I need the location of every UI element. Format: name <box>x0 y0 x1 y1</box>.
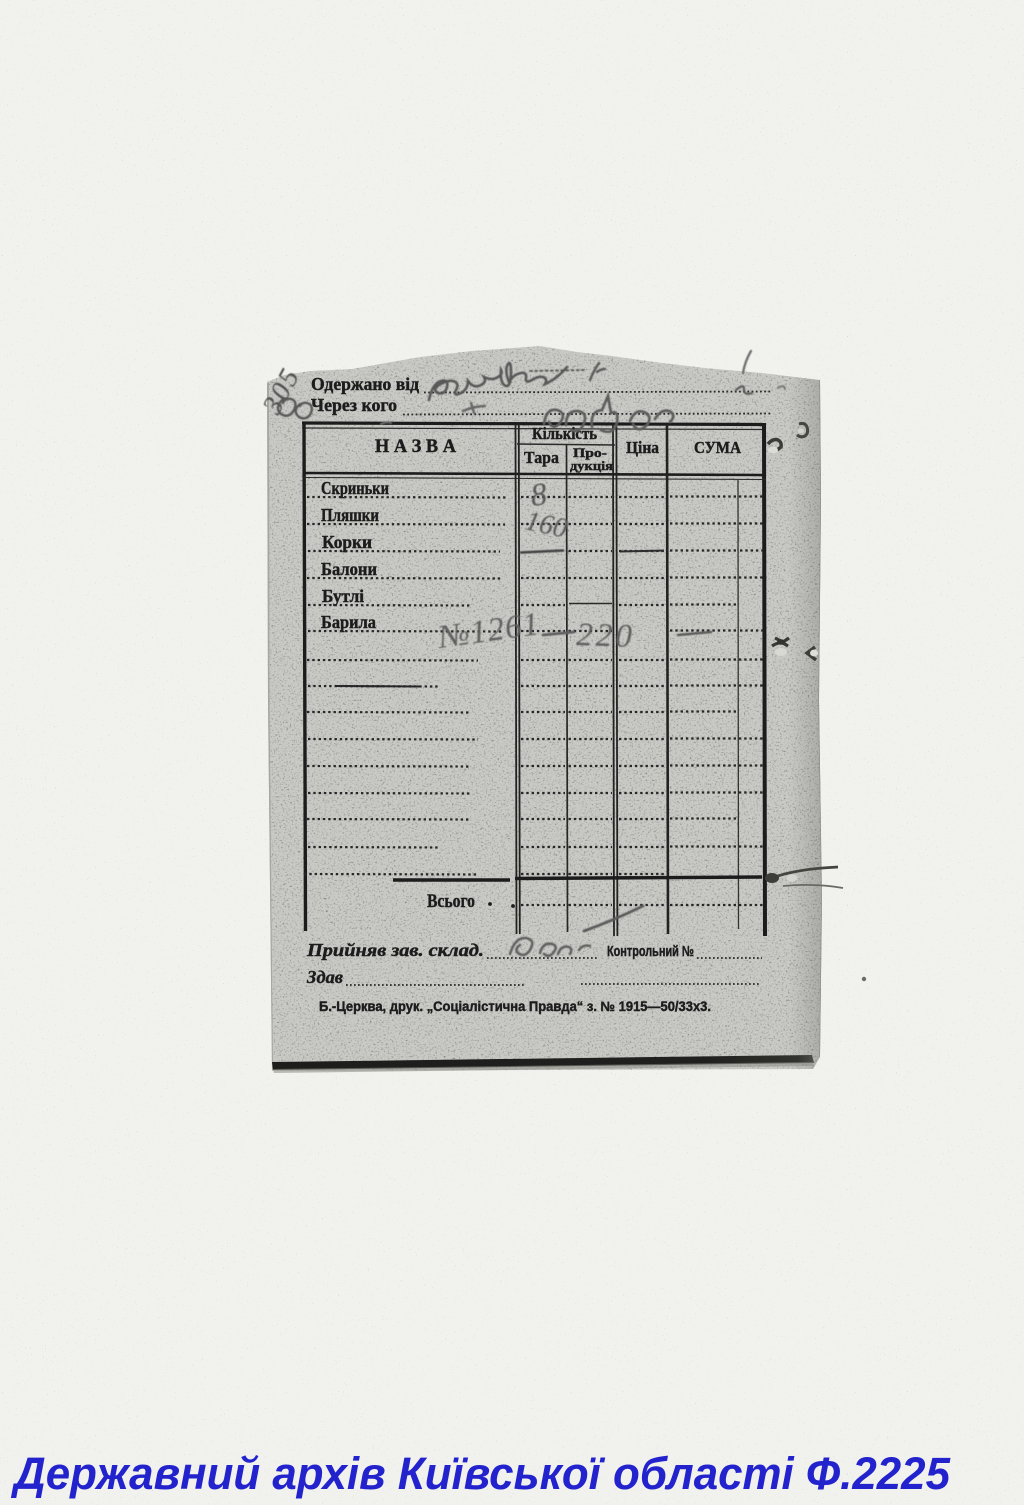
svg-text:Через кого: Через кого <box>311 395 397 415</box>
svg-text:Балони: Балони <box>321 559 377 579</box>
svg-text:Одержано від: Одержано від <box>311 374 419 394</box>
svg-text:Барила: Барила <box>321 612 376 632</box>
svg-text:Тара: Тара <box>524 448 559 467</box>
svg-text:Б.-Церква, друк. „Соціалісти: Б.-Церква, друк. „Соціалістична Правда“ … <box>319 999 711 1014</box>
svg-text:Всього: Всього <box>427 891 475 912</box>
svg-text:Скриньки: Скриньки <box>321 478 389 498</box>
svg-text:Пляшки: Пляшки <box>321 505 379 525</box>
svg-text:Корки: Корки <box>322 532 372 552</box>
svg-text:Контрольний №: Контрольний № <box>607 944 694 960</box>
svg-text:СУМА: СУМА <box>694 438 742 457</box>
svg-text:Н А З В А: Н А З В А <box>375 436 456 457</box>
svg-text:220: 220 <box>576 617 636 655</box>
svg-text:Кількість: Кількість <box>532 424 597 443</box>
svg-text:Прийняв зав. склад.: Прийняв зав. склад. <box>306 940 484 960</box>
svg-text:дукція: дукція <box>570 458 613 473</box>
svg-text:Ціна: Ціна <box>626 438 659 457</box>
svg-text:Бутлі: Бутлі <box>322 586 364 606</box>
svg-text:Здав: Здав <box>306 967 343 987</box>
svg-text:Державний архів Київської обла: Державний архів Київської області Ф.2225 <box>10 1448 951 1499</box>
